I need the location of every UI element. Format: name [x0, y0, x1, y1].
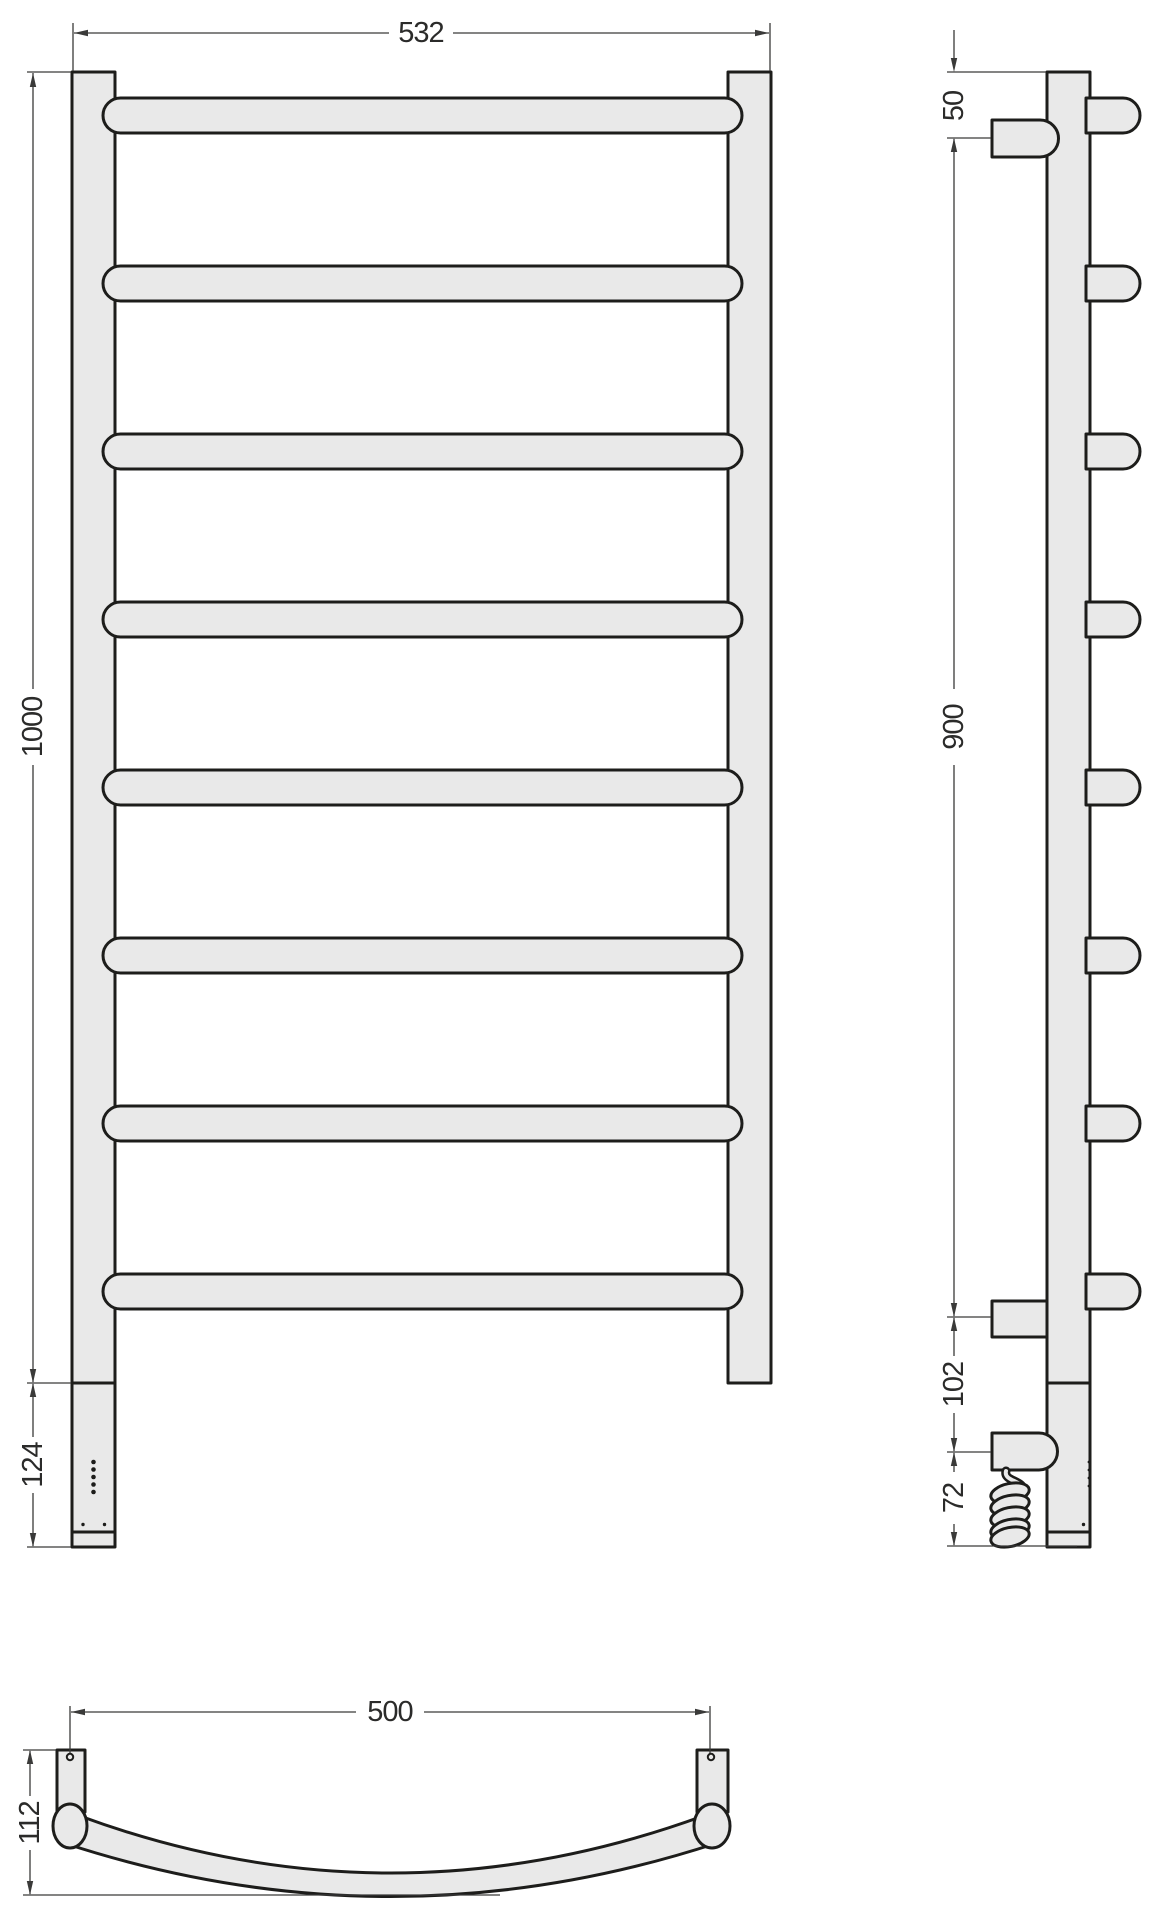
heater-cap-screw-dot [103, 1523, 106, 1526]
rung-side-stub [1086, 98, 1140, 133]
dimension-height-1000: 1000 [17, 72, 71, 1383]
rung [103, 434, 742, 469]
side-upper-wall-bracket [992, 120, 1059, 157]
side-post [1047, 72, 1090, 1383]
side-rung-stubs [1086, 98, 1140, 1309]
front-heater-end-cap [72, 1532, 115, 1547]
side-screw-dot [1082, 1523, 1085, 1526]
top-left-post-section [53, 1804, 87, 1848]
front-view [72, 72, 771, 1547]
rung-side-stub [1086, 602, 1140, 637]
side-heating-element-head [992, 1433, 1058, 1470]
dim-label-top-offset: 50 [938, 91, 970, 121]
rung-side-stub [1086, 1274, 1140, 1309]
top-view [53, 1750, 730, 1897]
dim-label-cable: 72 [938, 1483, 970, 1513]
heater-cap-screw-dot [81, 1523, 84, 1526]
top-right-mount-hole [708, 1754, 714, 1760]
rung [103, 1274, 742, 1309]
dimension-lower-offset-102: 102 [938, 1317, 970, 1452]
dimension-cable-72: 72 [938, 1452, 970, 1546]
rung [103, 938, 742, 973]
rung [103, 1106, 742, 1141]
front-left-post [72, 72, 115, 1383]
dim-label-heater-section: 124 [17, 1441, 49, 1487]
rung [103, 98, 742, 133]
dim-label-height: 1000 [17, 697, 49, 758]
towel-rail-drawing: 532 1000 124 [0, 0, 1161, 1920]
rung-side-stub [1086, 1106, 1140, 1141]
drawing-canvas: 532 1000 124 [0, 0, 1161, 1920]
rung [103, 602, 742, 637]
dim-label-lower-offset: 102 [938, 1362, 970, 1407]
power-cable-coil [989, 1471, 1031, 1550]
dimension-mount-span-500: 500 [70, 1696, 710, 1753]
rung-side-stub [1086, 434, 1140, 469]
dim-label-mount-span: 500 [367, 1696, 412, 1728]
front-rungs [103, 98, 742, 1309]
dimension-heater-124: 124 [17, 1383, 71, 1547]
top-curved-rung [64, 1816, 717, 1897]
dim-label-depth: 112 [14, 1801, 46, 1844]
rung-side-stub [1086, 266, 1140, 301]
front-heater-housing [72, 1383, 115, 1532]
side-lower-wall-bracket [992, 1301, 1047, 1337]
side-heater-end-cap [1047, 1532, 1090, 1547]
dimension-top-offset-50: 50 [938, 30, 970, 121]
top-right-post-section [694, 1804, 730, 1848]
dimension-width-532: 532 [73, 17, 770, 71]
dim-label-bracket-span: 900 [938, 704, 970, 749]
dimension-bracket-span-900: 900 [938, 138, 970, 1317]
dim-label-width: 532 [398, 17, 443, 49]
side-view [989, 72, 1140, 1550]
rung-side-stub [1086, 938, 1140, 973]
rung [103, 266, 742, 301]
rung-side-stub [1086, 770, 1140, 805]
rung [103, 770, 742, 805]
top-left-mount-hole [67, 1754, 73, 1760]
